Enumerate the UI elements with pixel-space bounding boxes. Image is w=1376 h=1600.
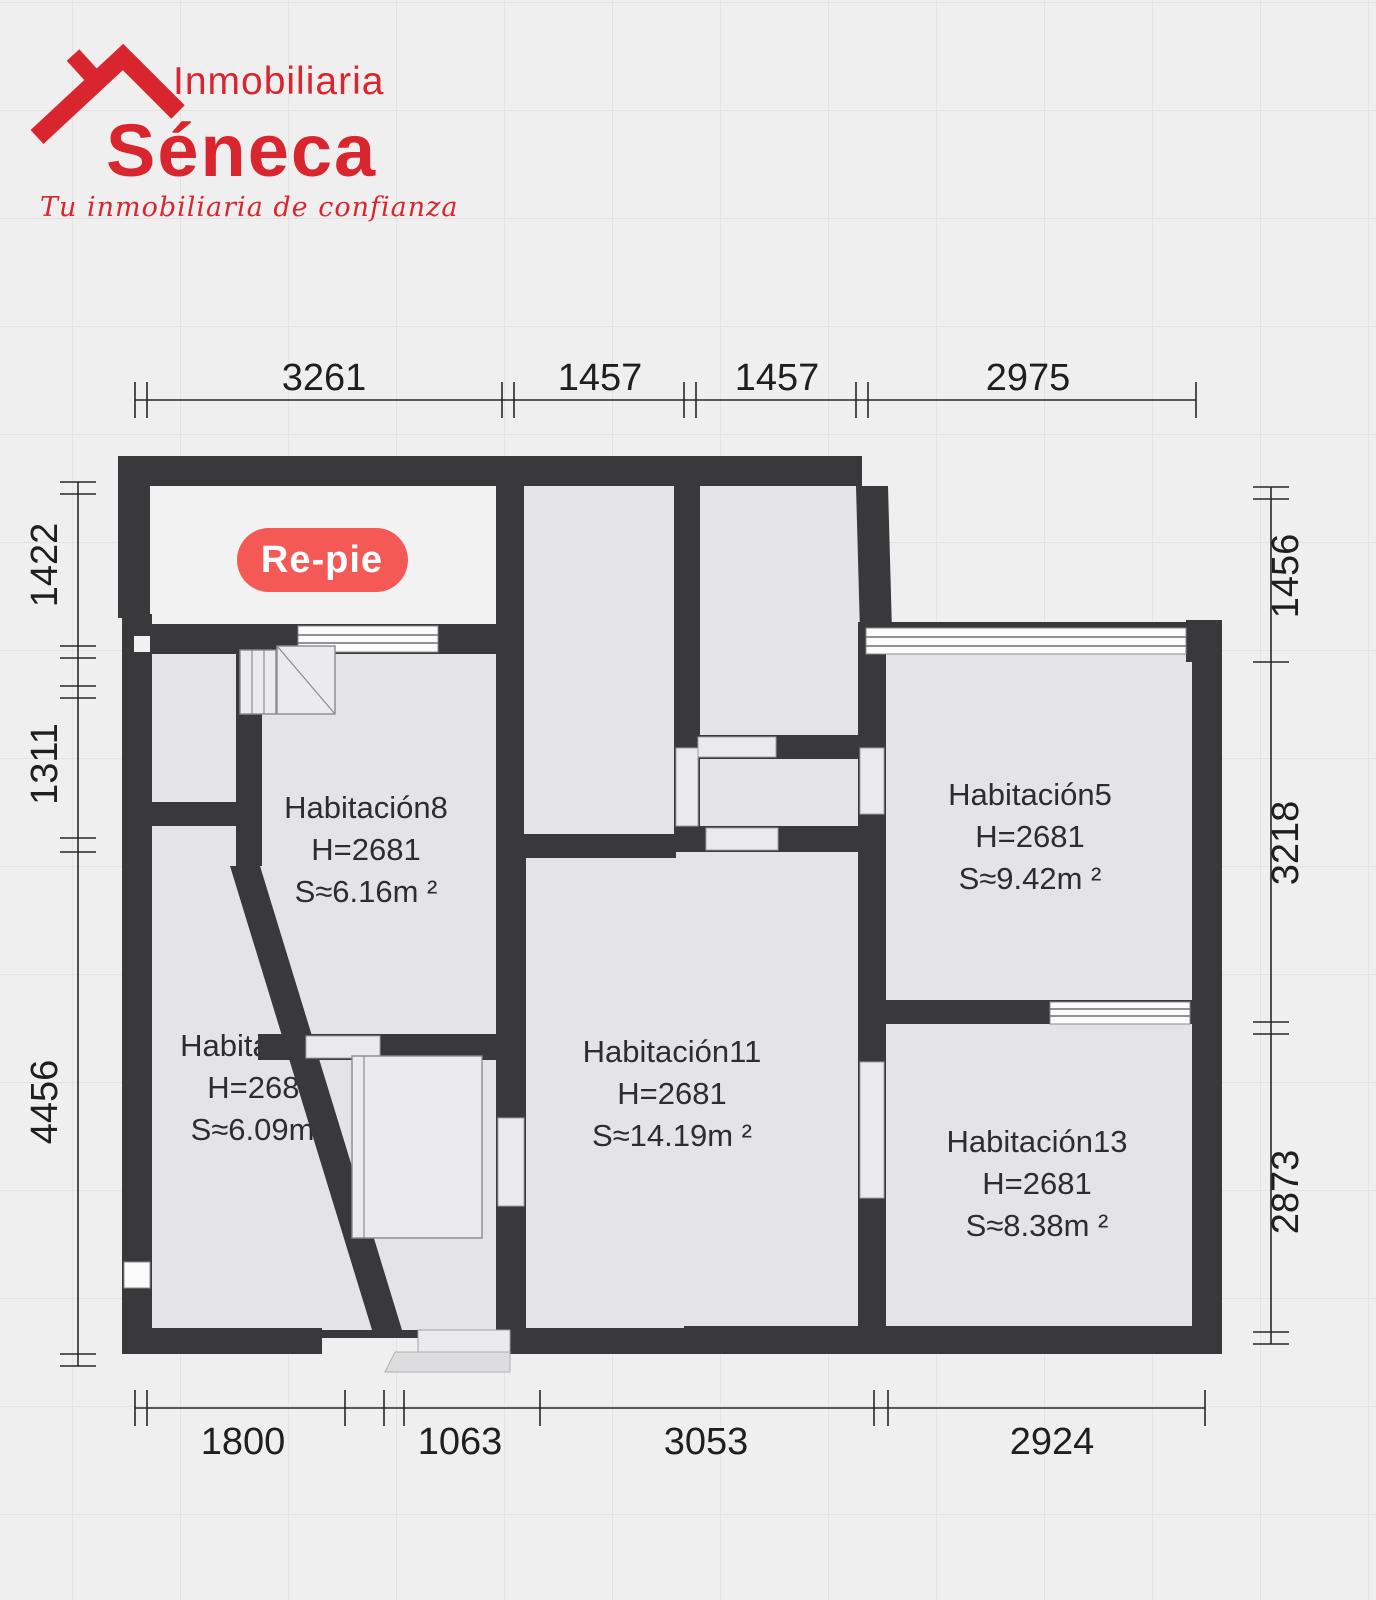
dimension-label: 3053 xyxy=(664,1421,749,1463)
wall-mid-divider xyxy=(674,484,700,742)
floor-plan-page: Inmobiliaria Séneca Tu inmobiliaria de c… xyxy=(0,0,1376,1600)
wall-gap xyxy=(134,636,150,652)
dimension-label: 1800 xyxy=(201,1421,286,1463)
wall-bottom-left xyxy=(122,1328,322,1354)
wall-right xyxy=(1192,624,1222,1354)
wall-bottom-sill xyxy=(322,1330,418,1338)
dimension-label: 1457 xyxy=(735,357,820,399)
dimension-label: 2924 xyxy=(1010,1421,1095,1463)
dimension-label: 3218 xyxy=(1265,801,1307,886)
dimension-label: 1456 xyxy=(1265,534,1307,619)
dimension-left: 1422 1311 4456 xyxy=(24,482,96,1366)
window-hab5-top xyxy=(866,628,1186,654)
wall-top xyxy=(118,456,862,486)
brand-logo: Inmobiliaria Séneca Tu inmobiliaria de c… xyxy=(37,55,458,223)
dimension-label: 2975 xyxy=(986,357,1071,399)
window-left-wall xyxy=(124,1262,150,1288)
wall-bottom-right xyxy=(684,1326,1222,1354)
dimension-bottom: 1800 1063 3053 2924 xyxy=(135,1390,1205,1463)
wall-left-lower xyxy=(122,614,152,1332)
floor-plan-canvas: Inmobiliaria Séneca Tu inmobiliaria de c… xyxy=(0,0,1376,1600)
wardrobe-hab8 xyxy=(240,650,276,714)
dimension-right: 1456 3218 2873 xyxy=(1253,487,1307,1344)
room-area: S≈8.38m ² xyxy=(966,1208,1109,1243)
repie-badge: Re-pie xyxy=(237,528,408,592)
door-vestibule-top xyxy=(698,737,776,757)
dimension-label: 2873 xyxy=(1265,1150,1307,1235)
brand-name-main: Séneca xyxy=(106,109,377,192)
door-vestibule-hab5 xyxy=(860,748,884,814)
brand-name-top: Inmobiliaria xyxy=(173,60,384,103)
window-hab5-hab13 xyxy=(1050,1002,1190,1024)
door-hall-hab11 xyxy=(498,1118,524,1206)
brand-tagline: Tu inmobiliaria de confianza xyxy=(40,192,458,223)
room-name: Habitación5 xyxy=(948,777,1112,812)
door-hab8-bottom xyxy=(306,1036,380,1058)
room-name: Habitación11 xyxy=(583,1034,762,1069)
room-area: S≈14.19m ² xyxy=(592,1118,752,1153)
wall-midrooms-right-slant xyxy=(856,486,892,632)
wall-bottom-mid xyxy=(508,1328,684,1354)
door-hab11-hab13 xyxy=(860,1062,884,1198)
room-name: Habitación8 xyxy=(284,790,448,825)
dimension-label: 4456 xyxy=(24,1060,66,1145)
closet-hallway xyxy=(352,1056,482,1238)
dimension-label: 3261 xyxy=(282,357,367,399)
room-height: H=2681 xyxy=(982,1166,1091,1201)
room-name: Habitación13 xyxy=(947,1124,1128,1159)
wall-w7-upper xyxy=(496,486,524,840)
door-vestibule-bottom xyxy=(706,828,778,850)
wall-left-upper xyxy=(118,456,150,618)
wall-hab2-top xyxy=(150,802,262,826)
room-area: S≈6.16m ² xyxy=(295,874,438,909)
dimension-top: 3261 1457 1457 2975 xyxy=(135,357,1196,418)
wall-midleft-bottom xyxy=(496,834,676,858)
wall-w7-lower xyxy=(496,840,526,1332)
room-area: S≈9.42m ² xyxy=(959,861,1102,896)
exterior-step xyxy=(385,1352,510,1372)
room-height: H=2681 xyxy=(311,832,420,867)
logo-roof-gable-icon xyxy=(73,55,103,88)
door-bottom-exterior xyxy=(418,1330,510,1352)
room-height: H=2681 xyxy=(975,819,1084,854)
room-height: H=2681 xyxy=(617,1076,726,1111)
dimension-label: 1063 xyxy=(418,1421,503,1463)
door-vestibule-left xyxy=(676,748,698,826)
repie-badge-label: Re-pie xyxy=(261,539,383,581)
dimension-label: 1311 xyxy=(24,723,66,805)
dimension-label: 1457 xyxy=(558,357,643,399)
dimension-label: 1422 xyxy=(24,523,66,608)
